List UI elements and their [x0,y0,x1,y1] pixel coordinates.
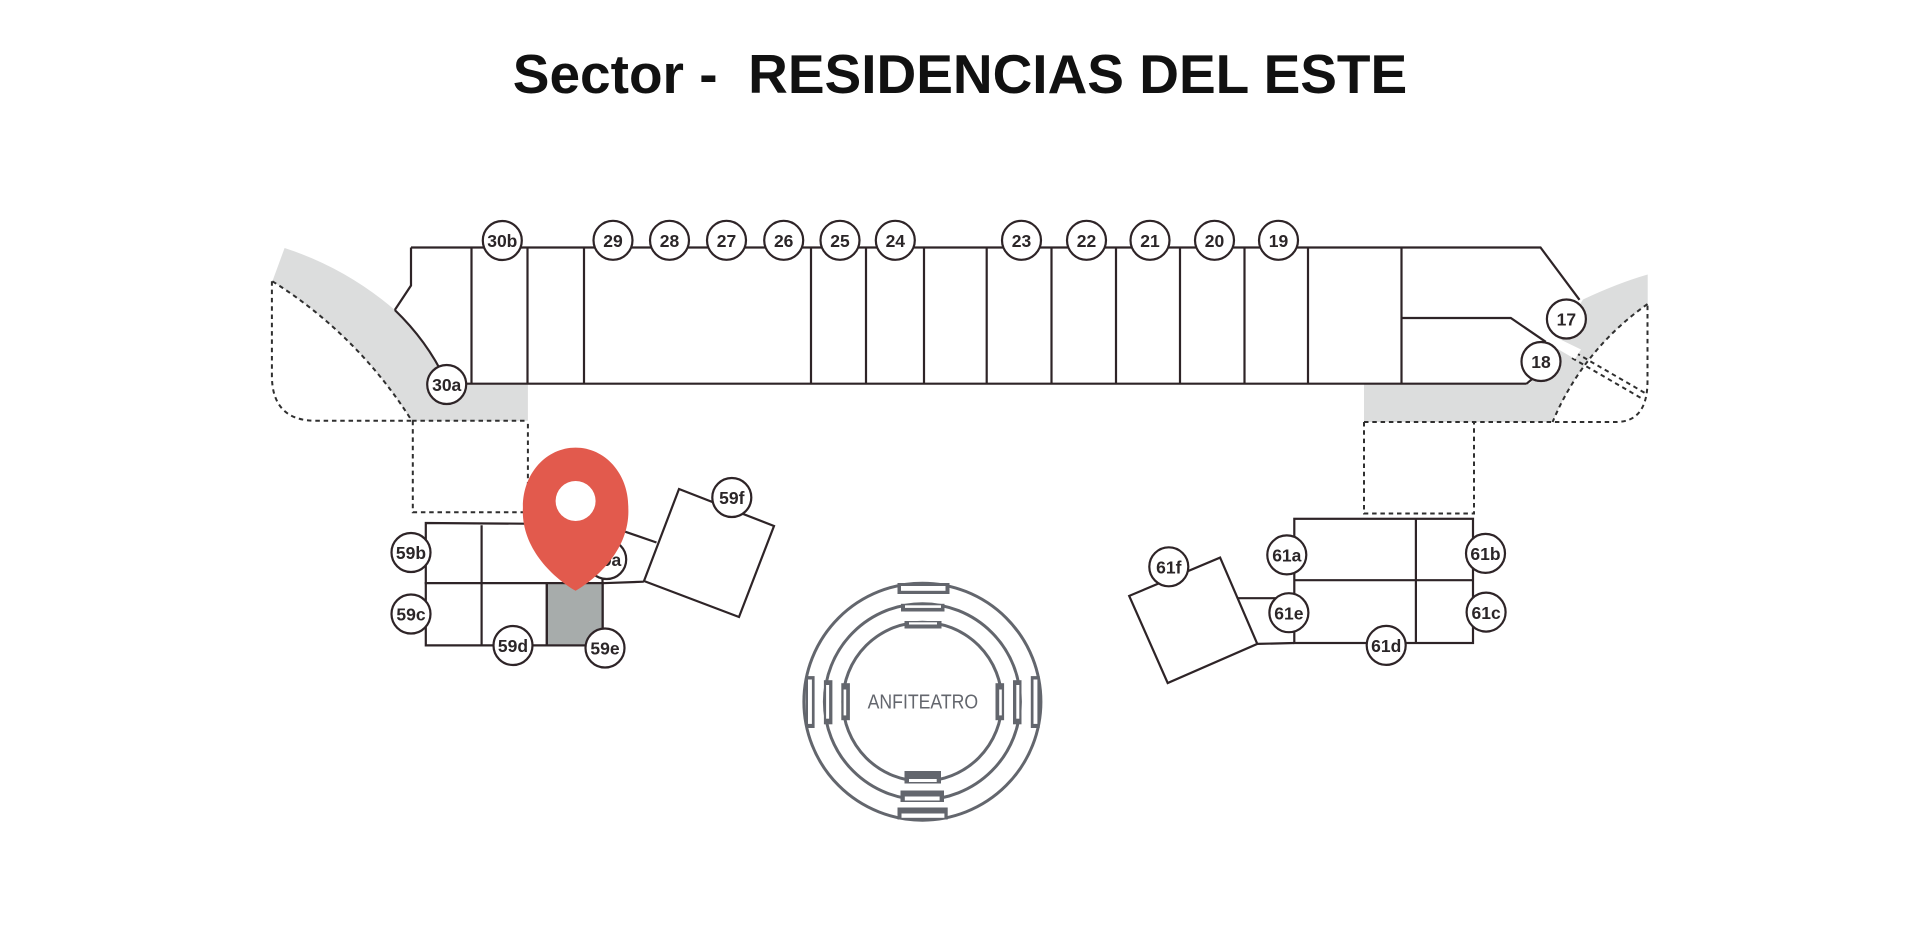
svg-text:59c: 59c [396,605,425,625]
svg-text:61f: 61f [1156,558,1181,578]
svg-text:61e: 61e [1274,603,1303,623]
svg-text:61c: 61c [1471,603,1500,623]
svg-text:59d: 59d [498,636,528,656]
svg-text:30a: 30a [432,375,461,395]
svg-text:59f: 59f [719,488,744,508]
svg-text:ANFITEATRO: ANFITEATRO [868,692,979,714]
svg-text:61d: 61d [1371,636,1401,656]
svg-text:30b: 30b [487,231,517,251]
svg-text:24: 24 [886,231,906,251]
svg-text:28: 28 [660,231,680,251]
svg-text:19: 19 [1269,231,1289,251]
svg-text:Sector - RESIDENCIAS DEL ESTE: Sector - RESIDENCIAS DEL ESTE [513,43,1407,105]
svg-text:61b: 61b [1470,544,1500,564]
svg-text:17: 17 [1557,310,1576,330]
svg-text:27: 27 [717,231,736,251]
svg-text:61a: 61a [1272,546,1301,566]
svg-text:22: 22 [1077,231,1097,251]
svg-text:18: 18 [1531,352,1551,372]
svg-text:21: 21 [1140,231,1160,251]
svg-text:59b: 59b [396,543,426,563]
svg-text:59e: 59e [590,639,619,659]
svg-text:26: 26 [774,231,794,251]
svg-text:29: 29 [603,231,623,251]
svg-text:23: 23 [1012,231,1032,251]
svg-text:20: 20 [1205,231,1225,251]
svg-text:25: 25 [830,231,850,251]
